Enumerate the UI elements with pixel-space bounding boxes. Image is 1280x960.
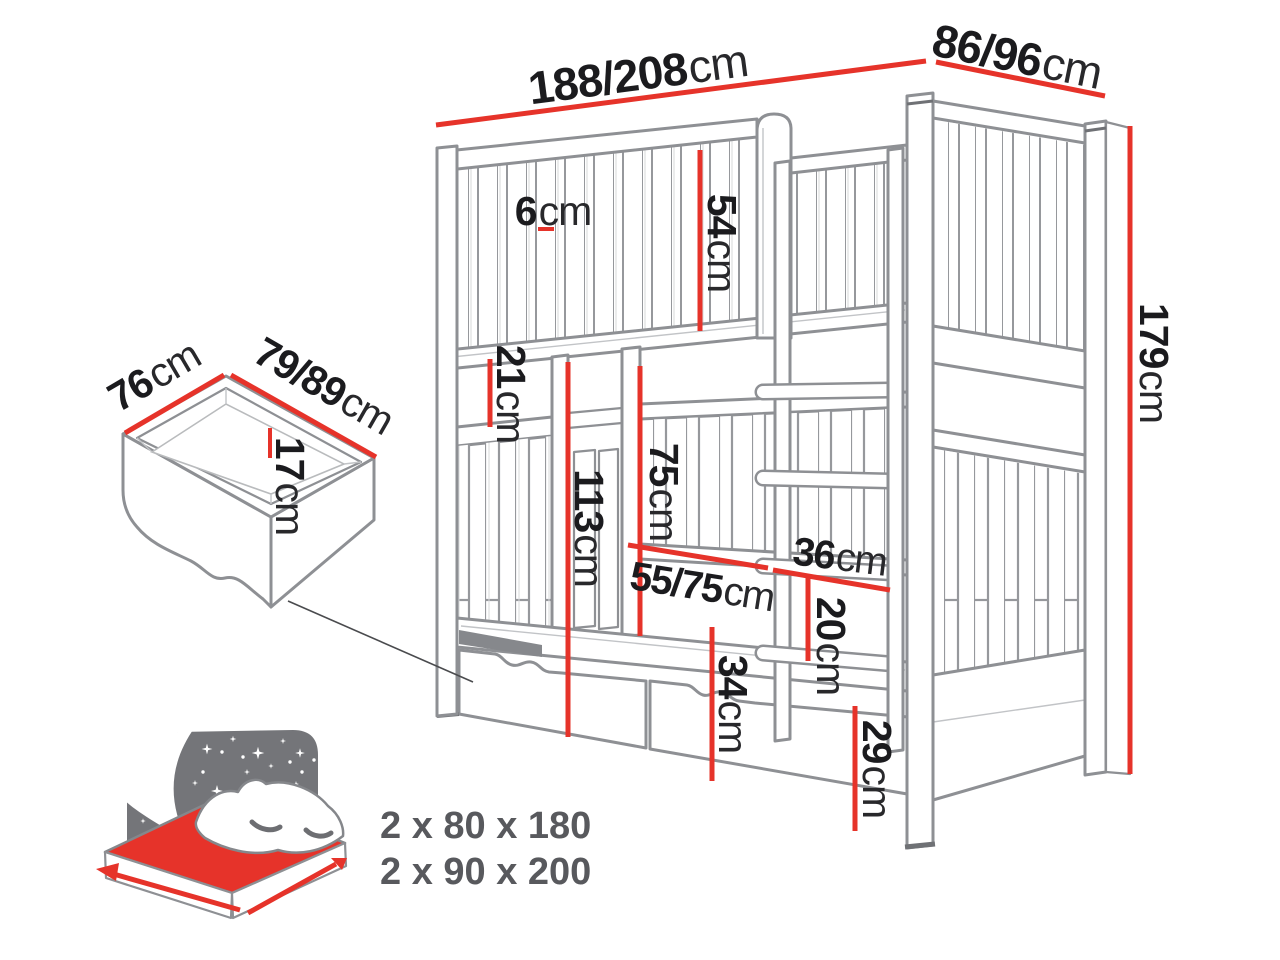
dim-label-bed-depth: 86/96cm (928, 14, 1106, 99)
end-upper-slat-panel (935, 120, 1085, 350)
mattress-icon (96, 727, 347, 918)
dim-label-total-height: 179cm (1131, 303, 1177, 423)
dim-label-bed-length: 188/208cm (525, 34, 751, 114)
front-left-post (437, 146, 457, 716)
dim-label-underside-height: 113cm (566, 469, 612, 587)
dim-label-base-height: 29cm (854, 720, 900, 818)
front-lower-slat-panel-left (457, 436, 552, 627)
dim-label-drawer-front: 34cm (710, 655, 756, 753)
mattress-size-line-1: 2 x 80 x 180 (380, 805, 591, 847)
end-lower-slat-panel (935, 449, 1085, 675)
dimension-diagram-page: 188/208cm 86/96cm 6cm 54cm 21cm 113cm 75… (0, 0, 1280, 960)
end-base-band (933, 650, 1085, 800)
dim-label-guard-height: 54cm (699, 194, 745, 292)
rear-right-post-side (1106, 122, 1130, 774)
dim-label-entry-height: 75cm (641, 443, 687, 541)
dim-label-bunk-gap: 21cm (488, 345, 534, 443)
bed-front-top-bunk (437, 119, 907, 369)
bed-drawer-left (459, 650, 646, 748)
dim-label-slat-gap: 6cm (515, 188, 591, 234)
rear-right-post (1085, 121, 1106, 775)
dim-label-drawer-inner-height: 17cm (267, 437, 313, 535)
mattress-size-line-2: 2 x 90 x 200 (380, 851, 591, 893)
drawer-detail-drawing: 76cm 79/89cm 17cm (100, 328, 473, 682)
mattress-size-text: 2 x 80 x 180 2 x 90 x 200 (380, 805, 591, 893)
bed-end-face (933, 101, 1130, 800)
ladder-rail-right (888, 148, 903, 752)
panel-top-rail (568, 408, 622, 428)
bunk-bed-dimension-diagram: 188/208cm 86/96cm 6cm 54cm 21cm 113cm 75… (0, 0, 1280, 960)
front-right-post (907, 93, 933, 848)
dim-label-rung-spacing: 20cm (808, 597, 854, 695)
